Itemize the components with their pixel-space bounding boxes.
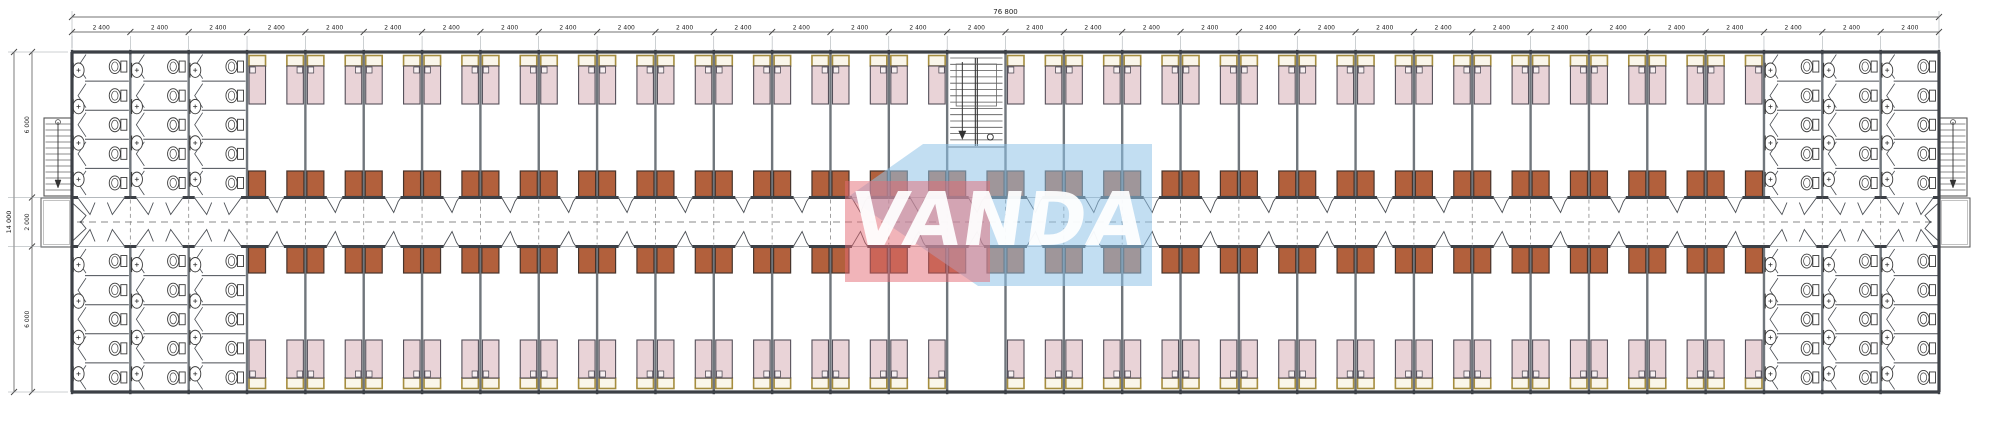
svg-text:2 400: 2 400: [1143, 25, 1160, 32]
svg-text:2 400: 2 400: [559, 25, 576, 32]
svg-text:2 400: 2 400: [209, 25, 226, 32]
floor-plan-drawing: 76 8002 4002 4002 4002 4002 4002 4002 40…: [0, 0, 2000, 427]
svg-text:2 400: 2 400: [1901, 25, 1918, 32]
svg-text:2 400: 2 400: [1843, 25, 1860, 32]
central-staircase: [948, 58, 1004, 147]
svg-text:2 400: 2 400: [443, 25, 460, 32]
svg-text:2 400: 2 400: [501, 25, 518, 32]
svg-text:2 400: 2 400: [268, 25, 285, 32]
svg-text:2 400: 2 400: [151, 25, 168, 32]
svg-text:2 400: 2 400: [1668, 25, 1685, 32]
svg-text:2 400: 2 400: [1376, 25, 1393, 32]
svg-text:2 400: 2 400: [1493, 25, 1510, 32]
svg-text:2 400: 2 400: [1026, 25, 1043, 32]
svg-text:2 400: 2 400: [968, 25, 985, 32]
svg-text:2 400: 2 400: [909, 25, 926, 32]
svg-text:2 400: 2 400: [1201, 25, 1218, 32]
svg-text:2 400: 2 400: [1434, 25, 1451, 32]
svg-text:6 000: 6 000: [24, 310, 31, 327]
svg-text:2 400: 2 400: [93, 25, 110, 32]
svg-text:2 400: 2 400: [1726, 25, 1743, 32]
svg-text:76 800: 76 800: [993, 8, 1018, 16]
svg-text:2 400: 2 400: [793, 25, 810, 32]
svg-text:2 400: 2 400: [1084, 25, 1101, 32]
svg-text:6 000: 6 000: [24, 116, 31, 133]
dimension-top: 76 8002 4002 4002 4002 4002 4002 4002 40…: [69, 8, 1942, 49]
svg-text:2 400: 2 400: [1785, 25, 1802, 32]
svg-text:2 400: 2 400: [326, 25, 343, 32]
svg-text:2 400: 2 400: [384, 25, 401, 32]
floor-plan-canvas: 76 8002 4002 4002 4002 4002 4002 4002 40…: [0, 0, 2000, 427]
svg-text:2 400: 2 400: [618, 25, 635, 32]
svg-text:2 400: 2 400: [1318, 25, 1335, 32]
svg-text:2 400: 2 400: [676, 25, 693, 32]
svg-text:2 400: 2 400: [1610, 25, 1627, 32]
svg-text:2 400: 2 400: [734, 25, 751, 32]
svg-text:2 400: 2 400: [1551, 25, 1568, 32]
svg-text:2 400: 2 400: [1259, 25, 1276, 32]
svg-text:14 000: 14 000: [5, 211, 13, 234]
svg-text:2 400: 2 400: [851, 25, 868, 32]
svg-text:2 000: 2 000: [24, 213, 31, 230]
